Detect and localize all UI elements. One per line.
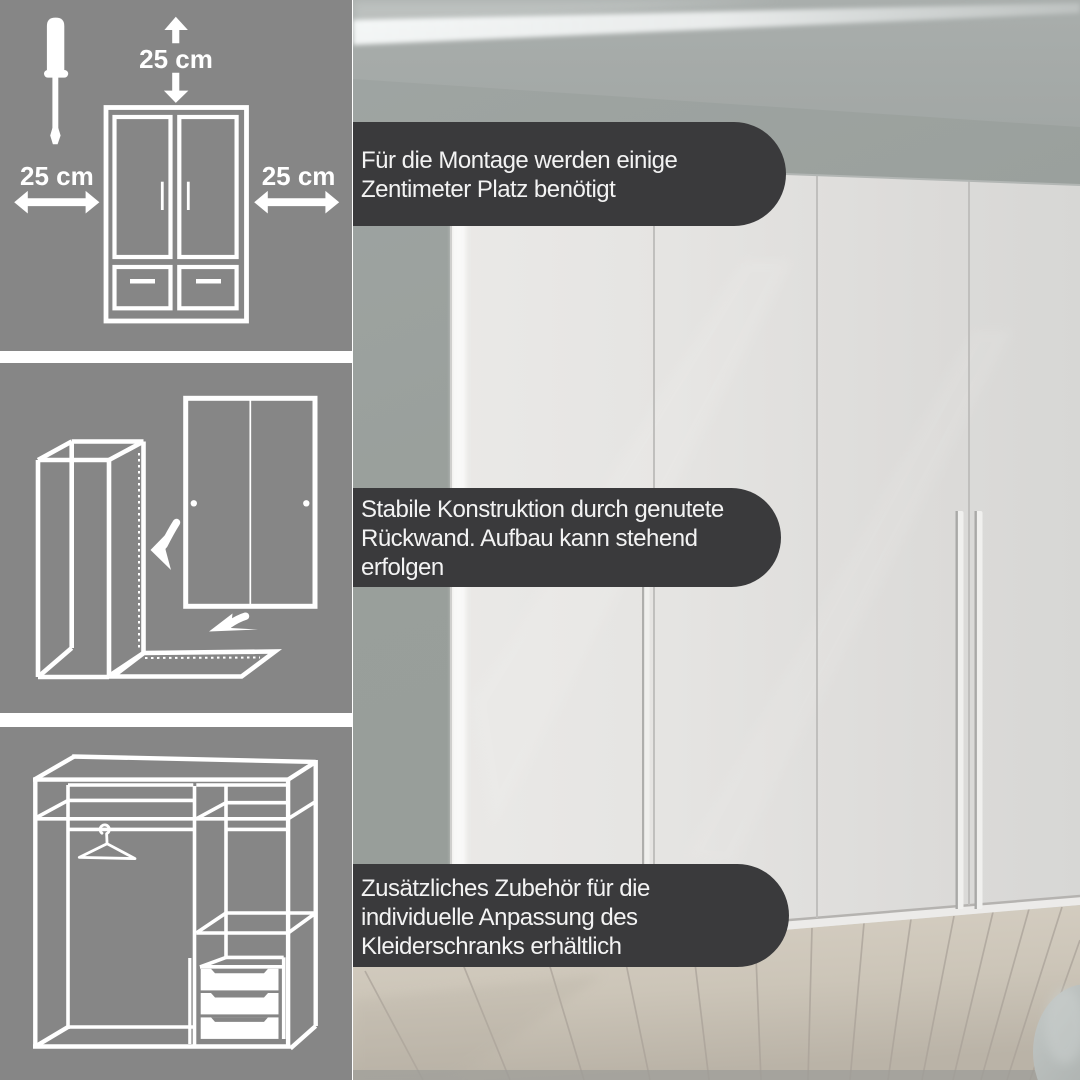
svg-text:25 cm: 25 cm — [139, 44, 213, 74]
svg-text:25 cm: 25 cm — [20, 161, 94, 191]
svg-text:25 cm: 25 cm — [262, 161, 336, 191]
